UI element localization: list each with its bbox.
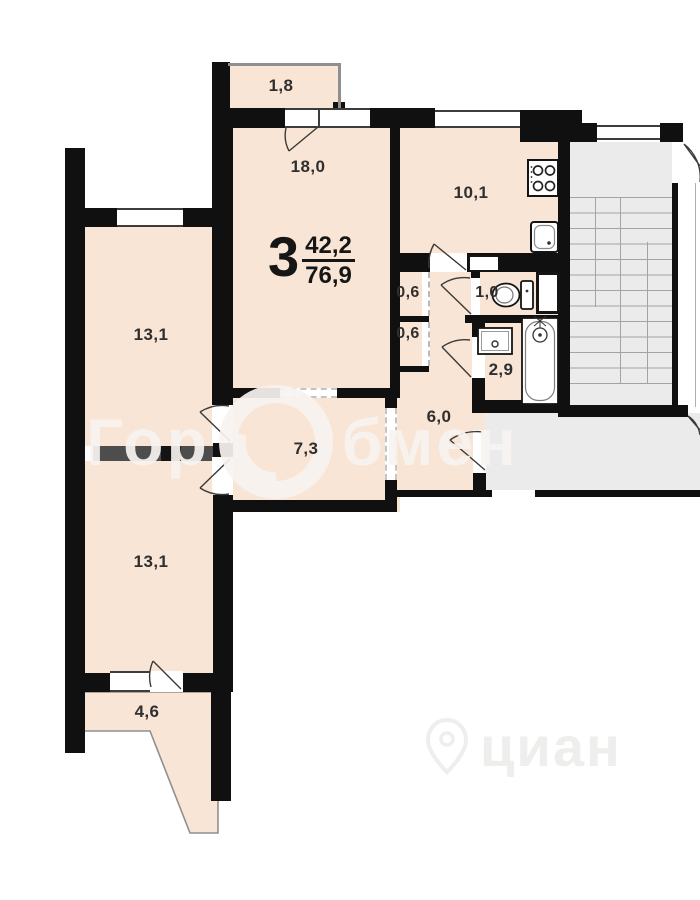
door-arc [200, 459, 230, 495]
label-kitchen: 10,1 [454, 183, 489, 203]
label-balcony-top: 1,8 [269, 76, 294, 96]
label-bathroom: 2,9 [489, 360, 514, 380]
label-closet-a: 0,6 [396, 284, 419, 302]
door-arc [442, 340, 471, 377]
door-arc [285, 127, 318, 151]
floor-plan: Гор бмен циан 3 42,2 76,9 1,8 18,0 10,1 … [0, 0, 700, 900]
door-arc [429, 244, 466, 270]
door-arc [684, 144, 700, 182]
label-balcony-bottom: 4,6 [135, 702, 160, 722]
door-arc [200, 405, 230, 441]
label-hallway: 7,3 [294, 439, 319, 459]
label-corridor: 6,0 [427, 407, 452, 427]
label-bedroom-upper: 13,1 [134, 325, 169, 345]
fixtures-and-doors [0, 0, 700, 900]
label-living-room: 18,0 [291, 157, 326, 177]
door-arcs [150, 127, 700, 689]
total-area-value: 76,9 [305, 262, 352, 290]
washbasin-icon [478, 328, 512, 354]
door-arc [441, 278, 471, 314]
door-arc [450, 432, 485, 470]
living-area-value: 42,2 [302, 233, 355, 262]
rooms-count: 3 [268, 231, 299, 283]
door-arc [150, 661, 181, 689]
label-wc: 1,0 [475, 284, 498, 302]
apartment-stamp: 3 42,2 76,9 [268, 231, 355, 290]
label-closet-b: 0,6 [396, 325, 419, 343]
door-arc [688, 416, 700, 435]
bathtub-icon [522, 316, 558, 404]
kitchen-sink-icon [531, 222, 558, 252]
stove-icon [528, 160, 558, 196]
label-bedroom-lower: 13,1 [134, 552, 169, 572]
